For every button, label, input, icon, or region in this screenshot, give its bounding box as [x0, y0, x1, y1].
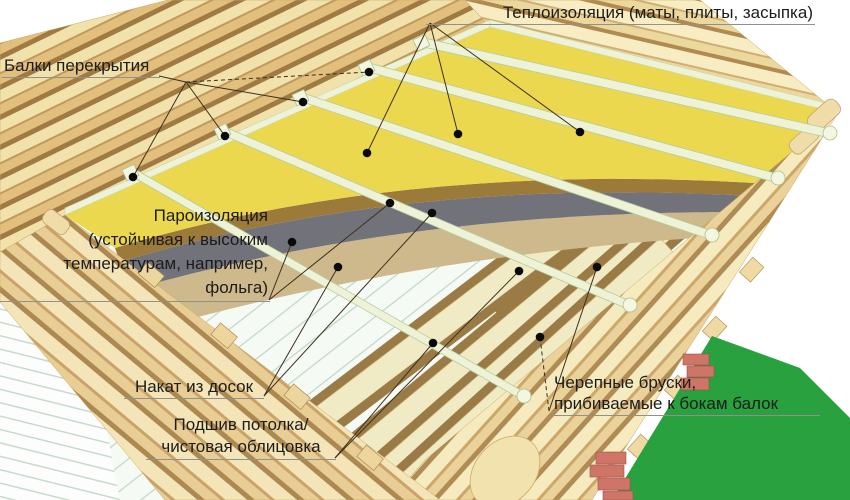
label-thermal-insulation: Теплоизоляция (маты, плиты, засыпка) — [426, 2, 815, 25]
label-line: чистовая облицовка — [161, 437, 320, 456]
marker-dot-insulation — [363, 149, 372, 158]
marker-dot-vapor — [288, 238, 297, 247]
label-line: Черепные бруски, — [554, 373, 696, 392]
diagram-canvas: Балки перекрытия Теплоизоляция (маты, пл… — [0, 0, 850, 500]
label-line: Пароизоляция — [154, 206, 268, 225]
marker-dot-bar — [536, 333, 545, 342]
label-board-roll: Накат из досок — [124, 376, 264, 399]
marker-dot-lining — [515, 267, 524, 276]
label-line: температурам, например, — [63, 254, 268, 273]
marker-dot-beam — [299, 98, 308, 107]
label-line: прибиваемые к бокам балок — [554, 394, 778, 413]
label-vapor-barrier: Пароизоляция (устойчивая к высоким темпе… — [0, 204, 270, 302]
label-line: фольга) — [205, 278, 268, 297]
marker-dot-beam — [129, 173, 138, 182]
marker-dot-bar — [593, 263, 602, 272]
label-line: (устойчивая к высоким — [88, 230, 268, 249]
marker-dot-insulation — [576, 128, 585, 137]
label-line: Подшив потолка/ — [174, 415, 309, 434]
marker-dot-boards — [334, 263, 343, 272]
marker-dot-beam — [221, 132, 230, 141]
label-floor-beams: Балки перекрытия — [2, 55, 160, 78]
marker-dot-boards — [428, 209, 437, 218]
marker-dot-vapor — [386, 199, 395, 208]
marker-dot-beam — [365, 68, 374, 77]
label-ceiling-lining: Подшив потолка/ чистовая облицовка — [146, 414, 336, 460]
label-skull-bars: Черепные бруски, прибиваемые к бокам бал… — [552, 372, 820, 416]
marker-dot-lining — [429, 339, 438, 348]
marker-dot-insulation — [454, 130, 463, 139]
